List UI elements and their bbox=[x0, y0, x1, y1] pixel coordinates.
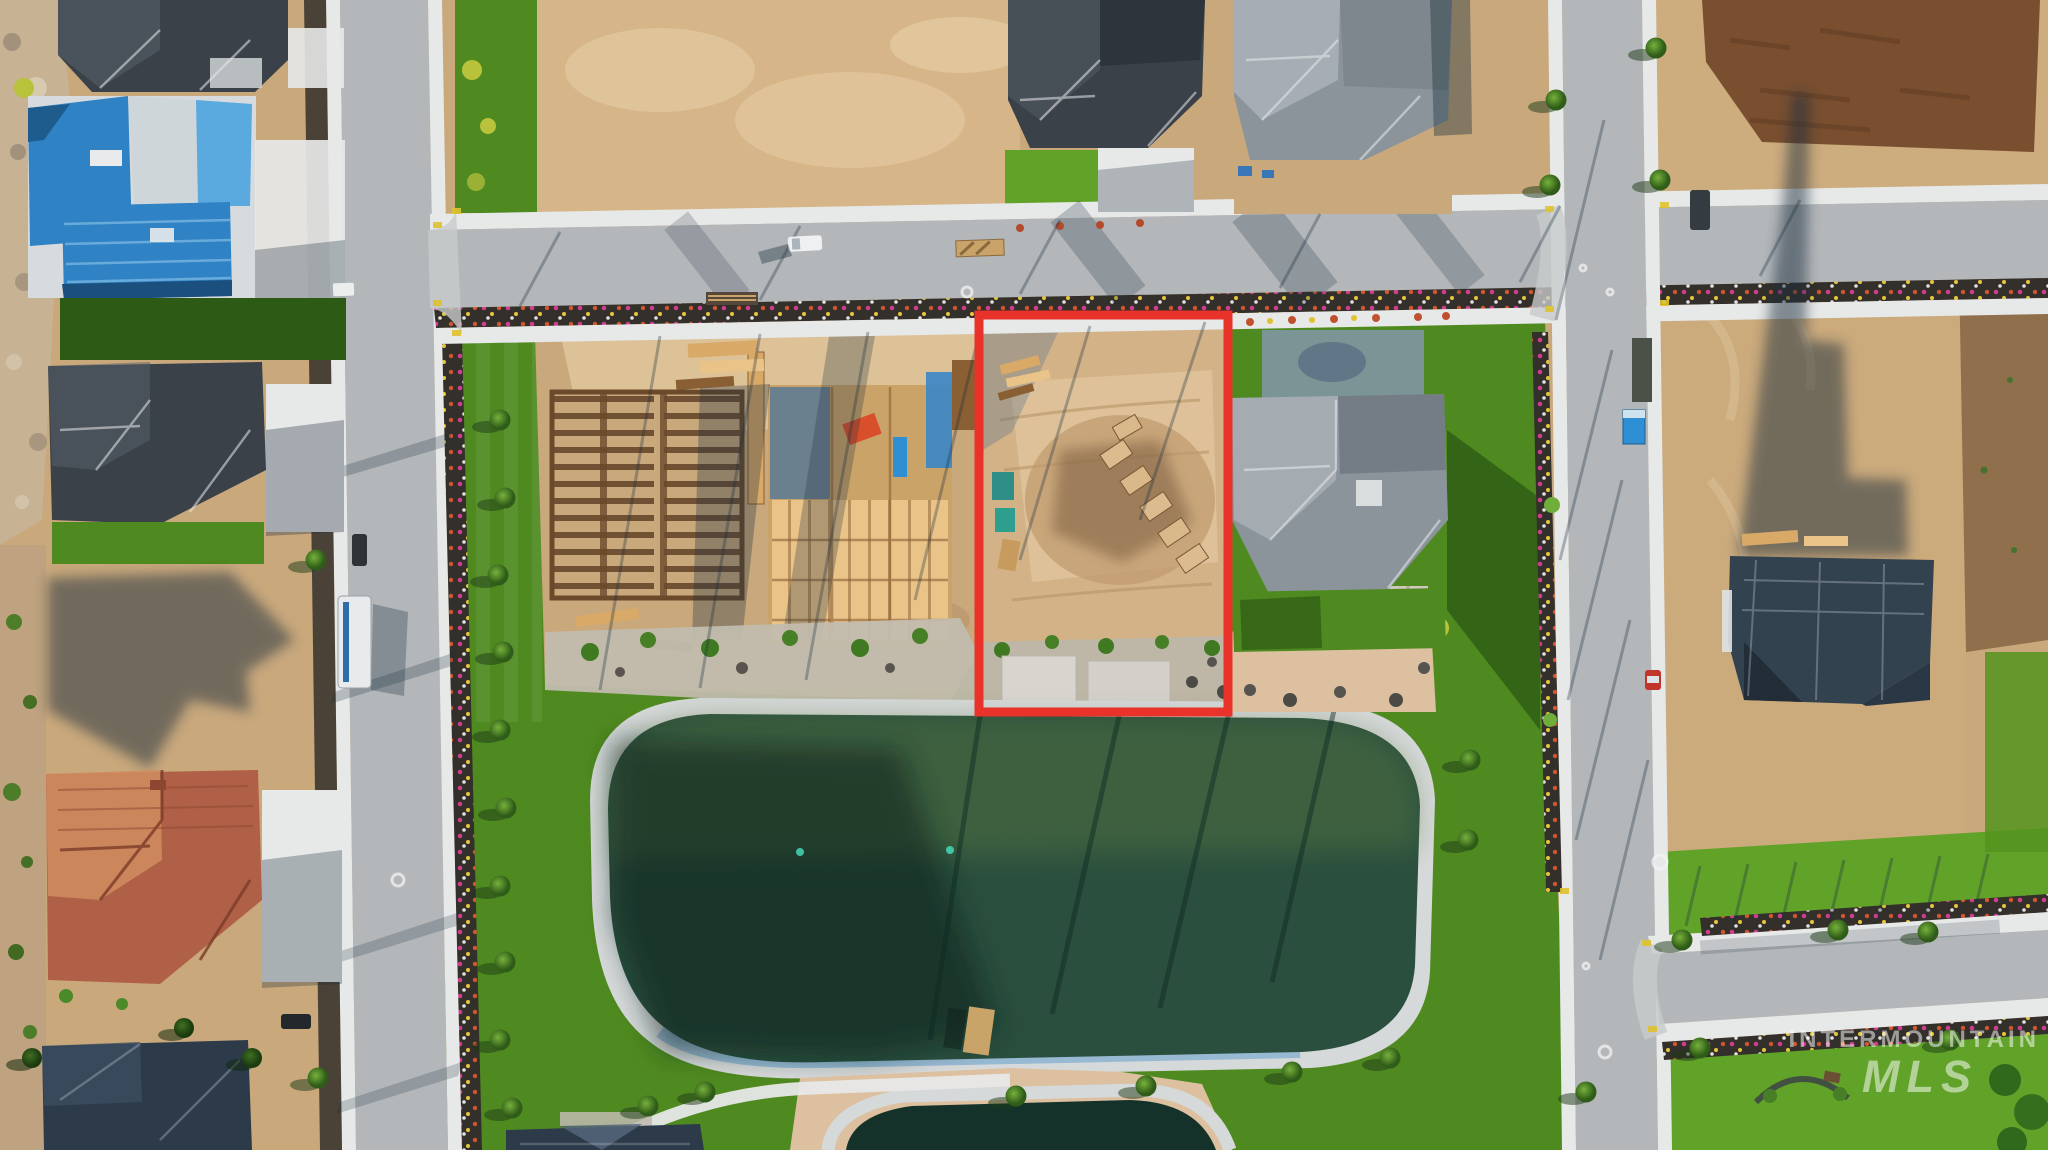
aerator-dot bbox=[796, 848, 804, 856]
shadowed-lawn bbox=[60, 298, 346, 360]
watermark-line1: INTERMOUNTAIN bbox=[1788, 1028, 2040, 1052]
boundary-lot-interior bbox=[979, 315, 1231, 713]
porta-potty bbox=[1623, 410, 1645, 444]
dark-suv bbox=[352, 534, 367, 566]
blue-tarp bbox=[893, 437, 907, 477]
teal-equipment-box bbox=[992, 472, 1014, 500]
aerial-scene bbox=[0, 0, 2048, 1150]
dark-car bbox=[281, 1014, 311, 1029]
construction-barricade bbox=[956, 239, 1005, 257]
watermark-line2: MLS bbox=[1788, 1054, 1978, 1100]
pond-dock bbox=[943, 1004, 995, 1056]
utility-trailer bbox=[1632, 338, 1652, 402]
aerator-dot bbox=[946, 846, 954, 854]
white-car bbox=[333, 283, 354, 297]
house-top-right-gray bbox=[1234, 0, 1472, 214]
red-car bbox=[1645, 670, 1661, 690]
rv-trailer bbox=[338, 596, 408, 696]
house-gray-hip-roof bbox=[1232, 312, 1450, 652]
dark-pickup bbox=[1690, 190, 1710, 230]
white-pickup-truck bbox=[788, 235, 823, 252]
construction-lots bbox=[535, 326, 977, 712]
pond bbox=[590, 698, 1435, 1078]
lumber-trailer bbox=[706, 292, 758, 305]
blue-tarp-tall bbox=[926, 372, 952, 468]
aerial-listing-photo: INTERMOUNTAIN MLS bbox=[0, 0, 2048, 1150]
mls-watermark: INTERMOUNTAIN MLS bbox=[1788, 1028, 2040, 1100]
